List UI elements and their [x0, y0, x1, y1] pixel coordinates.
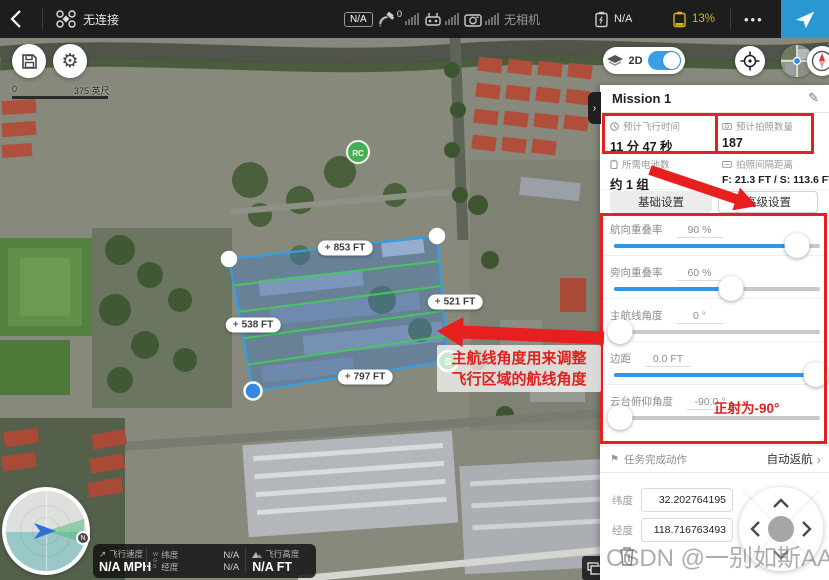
- flag-icon: ⚑: [610, 454, 619, 465]
- slider-label: 旁向重叠率: [610, 265, 663, 280]
- satellite-icon: [378, 11, 396, 27]
- compass-needle-icon: [811, 50, 829, 72]
- telemetry-bar: ↗飞行速度 N/A MPH WGS 纬度N/A 经度N/A 飞行高度 N/A F…: [93, 544, 316, 578]
- edge-length-pill-top[interactable]: +853 FT: [318, 241, 373, 256]
- north-indicator: N: [76, 531, 90, 545]
- photo-count-value: 187: [722, 136, 829, 150]
- back-chevron-icon: [8, 9, 24, 29]
- takeoff-plane-icon: [794, 8, 816, 30]
- longitude-label: 经度: [612, 523, 633, 538]
- dpad-down-arrow[interactable]: [774, 551, 788, 558]
- satellite-count: 0: [397, 9, 402, 19]
- camera-status-label: 无相机: [504, 0, 540, 38]
- finish-action-label: 任务完成动作: [624, 452, 687, 467]
- toggle-knob: [663, 52, 680, 69]
- dpad-up-arrow[interactable]: [774, 500, 788, 507]
- stat-label: 拍照间隔距离: [736, 157, 793, 171]
- slider-value-field[interactable]: 90 %: [677, 224, 723, 238]
- slider-row-route-angle: 主航线角度0 °: [600, 299, 829, 342]
- more-menu-button[interactable]: •••: [744, 0, 764, 38]
- flight-time-value: 11 分 47 秒: [610, 136, 722, 155]
- satellite-signal-bars: [405, 13, 419, 25]
- route-angle-note: 主航线角度用来调整 飞行区域的航线角度: [437, 345, 601, 392]
- lng-label: 经度: [161, 561, 178, 573]
- slider-value-field[interactable]: 0.0 FT: [645, 353, 691, 367]
- wgs-label: WGS: [153, 552, 158, 570]
- stat-label: 所需电池数: [622, 157, 670, 171]
- rc-battery-icon: [594, 11, 609, 28]
- dpad-left-arrow[interactable]: [752, 522, 759, 536]
- remote-controller-icon: [424, 11, 442, 27]
- speed-value: N/A MPH: [99, 560, 140, 574]
- mission-title: Mission 1: [612, 91, 671, 106]
- map-layers-icon: [607, 55, 623, 67]
- plus-icon: +: [435, 297, 441, 308]
- vertex-handle[interactable]: [221, 251, 238, 268]
- rc-signal-bars: [445, 13, 459, 25]
- photo-interval-value: F: 21.3 FT / S: 113.6 FT: [722, 174, 829, 186]
- stat-label: 预计飞行时间: [623, 119, 680, 133]
- battery-icon: [672, 11, 687, 28]
- slider-track[interactable]: [614, 330, 820, 334]
- slider-thumb[interactable]: [785, 233, 810, 258]
- speed-arrow-icon: ↗: [99, 549, 106, 560]
- interval-icon: [722, 160, 732, 168]
- dpad-right-arrow[interactable]: [803, 522, 810, 536]
- edit-mission-button[interactable]: ✎: [808, 90, 819, 106]
- aircraft-status[interactable]: 无连接: [56, 0, 119, 38]
- camera-signal-bars: [485, 13, 499, 25]
- slider-row-side-overlap: 旁向重叠率60 %: [600, 256, 829, 299]
- clock-icon: [610, 122, 619, 131]
- lng-value: N/A: [223, 562, 239, 573]
- plus-icon: +: [345, 372, 351, 383]
- gear-icon: ⚙: [61, 50, 78, 73]
- map-mode-label: 2D: [628, 55, 642, 67]
- plus-icon: +: [233, 320, 239, 331]
- scale-zero: 0: [12, 84, 17, 94]
- gimbal-pitch-note: 正射为-90°: [714, 397, 779, 417]
- save-icon: [21, 53, 38, 70]
- slider-label: 边距: [610, 351, 631, 366]
- slider-track[interactable]: [614, 373, 820, 377]
- compass-reset-button[interactable]: [807, 46, 829, 76]
- slider-fill: [614, 373, 816, 377]
- crosshair-icon: [740, 51, 760, 71]
- app-screen: S RC +853 FT +521 FT +538 FT +797 FT 0 3…: [0, 0, 829, 580]
- settings-tabs: 基础设置 高级设置: [600, 191, 829, 214]
- mission-header: Mission 1 ✎: [600, 85, 829, 113]
- altitude-section: 飞行高度 N/A FT: [246, 544, 305, 578]
- rc-signal-status[interactable]: [424, 0, 459, 38]
- svg-text:RC: RC: [352, 149, 364, 158]
- dpad-center-button[interactable]: [768, 516, 794, 542]
- slider-row-margin: 边距0.0 FT: [600, 342, 829, 385]
- camera-signal-status[interactable]: [464, 0, 499, 38]
- slider-thumb[interactable]: [719, 276, 744, 301]
- slider-fill: [614, 287, 731, 291]
- latitude-label: 纬度: [612, 493, 633, 508]
- mission-settings-button[interactable]: ⚙: [53, 44, 87, 78]
- panel-collapse-tab[interactable]: ›: [588, 92, 601, 124]
- connection-status-label: 无连接: [83, 11, 119, 28]
- save-mission-button[interactable]: [12, 44, 46, 78]
- map-mode-pill[interactable]: 2D: [603, 47, 685, 74]
- tab-basic-settings[interactable]: 基础设置: [610, 191, 712, 213]
- tab-advanced-settings[interactable]: 高级设置: [718, 191, 818, 213]
- back-button[interactable]: [8, 0, 24, 38]
- start-flight-button[interactable]: [781, 0, 829, 38]
- slider-track[interactable]: [614, 244, 820, 248]
- gps-coords-section: WGS 纬度N/A 经度N/A: [147, 544, 245, 578]
- vertex-handle[interactable]: [429, 228, 446, 245]
- camera-icon: [464, 12, 482, 27]
- altitude-value: N/A FT: [252, 560, 299, 574]
- rc-battery-status[interactable]: N/A: [594, 0, 632, 38]
- slider-label: 航向重叠率: [610, 222, 663, 237]
- slider-value-field[interactable]: 0 °: [677, 310, 723, 324]
- battery-percent-value: 13%: [692, 13, 715, 25]
- rc-location-marker[interactable]: RC: [347, 141, 369, 163]
- finish-action-value: 自动返航: [767, 451, 813, 467]
- slider-track[interactable]: [614, 287, 820, 291]
- slider-thumb[interactable]: [803, 362, 828, 387]
- latitude-input[interactable]: 32.202764195: [641, 488, 733, 512]
- edge-length-pill-bottom[interactable]: +797 FT: [338, 370, 393, 385]
- finish-action-row[interactable]: ⚑任务完成动作 自动返航 ›: [600, 445, 829, 473]
- lat-label: 纬度: [161, 549, 178, 561]
- attitude-compass-widget[interactable]: [2, 487, 90, 575]
- edge-length-pill-left[interactable]: +538 FT: [226, 318, 281, 333]
- slider-thumb[interactable]: [608, 319, 633, 344]
- altitude-icon: [252, 550, 262, 558]
- slider-value-field[interactable]: 60 %: [677, 267, 723, 281]
- rc-battery-value: N/A: [614, 13, 632, 25]
- gps-mode-badge[interactable]: N/A: [344, 0, 373, 38]
- mission-stats: 预计飞行时间 11 分 47 秒 预计拍照数量 187 所需电池数 约 1 组 …: [600, 113, 829, 190]
- waypoint-dpad[interactable]: [739, 487, 823, 571]
- slider-row-course-overlap: 航向重叠率90 %: [600, 213, 829, 256]
- chevron-right-icon: ›: [817, 452, 821, 467]
- edge-length-pill-right[interactable]: +521 FT: [428, 295, 483, 310]
- slider-thumb[interactable]: [608, 405, 633, 430]
- center-location-button[interactable]: [735, 46, 765, 76]
- chevron-right-icon: ›: [593, 103, 596, 114]
- top-status-bar: 无连接 N/A 0 无相机 N/A 13% •••: [0, 0, 829, 38]
- plus-icon: +: [325, 243, 331, 254]
- longitude-input[interactable]: 118.716763493: [641, 518, 733, 542]
- stat-label: 预计拍照数量: [736, 119, 793, 133]
- lat-value: N/A: [223, 550, 239, 561]
- satellite-status[interactable]: 0: [378, 0, 419, 38]
- map-2d-toggle[interactable]: [648, 51, 681, 70]
- delete-waypoint-button[interactable]: [618, 545, 636, 567]
- drone-icon: [56, 10, 76, 28]
- slider-fill: [614, 244, 797, 248]
- flight-speed-section: ↗飞行速度 N/A MPH: [93, 544, 146, 578]
- aircraft-battery-status[interactable]: 13%: [672, 0, 715, 38]
- drone-heading-icon: [34, 523, 56, 539]
- battery-small-icon: [610, 159, 618, 169]
- photo-icon: [722, 122, 732, 130]
- vertex-handle-selected[interactable]: [245, 383, 262, 400]
- scale-bar: [12, 96, 108, 99]
